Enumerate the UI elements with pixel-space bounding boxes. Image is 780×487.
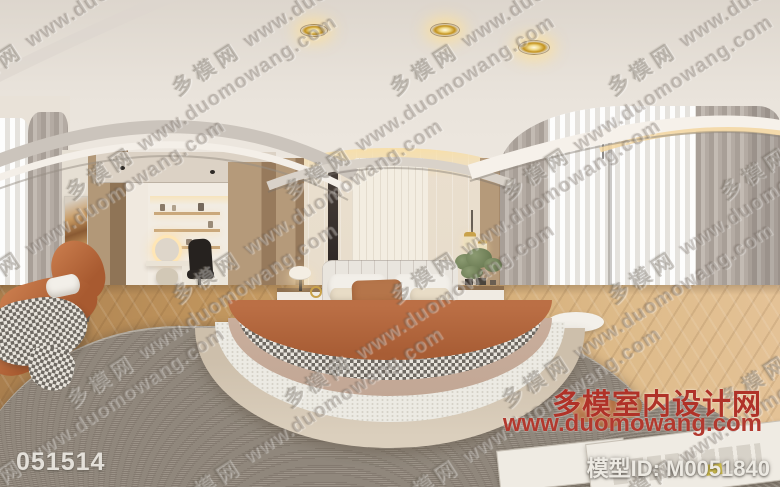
pendant-cord (471, 210, 473, 233)
nightstand-decor (476, 278, 486, 285)
hanging-plant (484, 258, 502, 272)
nightstand-decor (490, 280, 496, 285)
mushroom-table-lamp (289, 266, 311, 280)
table-lamp-stem (299, 279, 302, 291)
hanging-plant (461, 266, 483, 279)
nightstand-decor (465, 279, 473, 285)
panorama-screenshot: 多模网www.duomowang.com多模网www.duomowang.com… (0, 0, 780, 487)
gold-ring-decor (310, 286, 322, 298)
scene-id-text: 051514 (16, 448, 105, 477)
model-id-text: 模型ID: M0051840 (587, 451, 770, 483)
site-url-text: www.duomowang.com (503, 410, 762, 438)
pendant-light (464, 232, 476, 250)
